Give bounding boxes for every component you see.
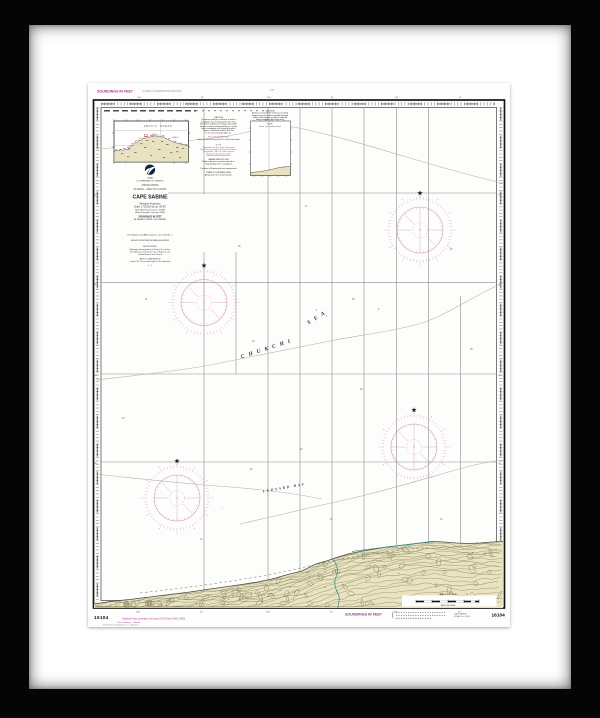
svg-text:United States Coast Guard: United States Coast Guard — [138, 253, 162, 256]
svg-text:163°: 163° — [136, 612, 140, 614]
svg-text:ALASKA – ARCTIC COAST: ALASKA – ARCTIC COAST — [134, 187, 167, 191]
svg-text:Positions of floating aids are: Positions of floating aids are approxima… — [201, 167, 237, 170]
svg-text:4: 4 — [316, 310, 318, 312]
svg-text:28: 28 — [470, 349, 473, 351]
svg-text:For Symbols and Abbreviations,: For Symbols and Abbreviations, see Chart… — [128, 233, 174, 236]
svg-text:22: 22 — [300, 449, 303, 451]
svg-text:30: 30 — [450, 249, 453, 251]
svg-text:AIDS TO NAVIGATION: AIDS TO NAVIGATION — [140, 257, 161, 260]
svg-text:Published at Washington, D.C.: Published at Washington, D.C. Edition 9 — [103, 623, 139, 626]
svg-text:163°: 163° — [137, 97, 141, 99]
svg-text:12: 12 — [200, 539, 203, 541]
svg-text:69°: 69° — [95, 195, 98, 197]
svg-text:27: 27 — [305, 206, 308, 208]
svg-text:obtained at the District Offic: obtained at the District Office. — [206, 152, 232, 155]
svg-text:SCALE 1:700 000: SCALE 1:700 000 — [439, 593, 457, 596]
svg-text:AT MEAN LOWER LOW WATER: AT MEAN LOWER LOW WATER — [134, 218, 166, 221]
svg-text:x: x — [222, 507, 224, 509]
svg-text:SOUNDINGS IN FEET: SOUNDINGS IN FEET — [97, 89, 134, 93]
svg-text:NAUTICAL MILES: NAUTICAL MILES — [441, 604, 457, 607]
svg-text:Point Lay continuation: Point Lay continuation — [259, 125, 281, 128]
svg-text:16104: 16104 — [94, 615, 109, 620]
svg-text:AUTHORITIES: AUTHORITIES — [143, 245, 157, 248]
svg-text:30': 30' — [200, 612, 203, 614]
svg-text:30': 30' — [459, 97, 462, 99]
svg-text:→: → — [97, 271, 99, 273]
svg-text:30': 30' — [330, 612, 333, 614]
svg-text:Additional chart coverage in t: Additional chart coverage in this area: … — [122, 618, 186, 621]
svg-text:4: 4 — [326, 316, 328, 318]
svg-text:ARCTIC OCEAN: ARCTIC OCEAN — [144, 125, 172, 128]
svg-text:⊥ ⊥: ⊥ ⊥ — [147, 263, 153, 267]
svg-text:CAPE SABINE: CAPE SABINE — [454, 612, 467, 615]
svg-text:Chart Catalog 4 — Alaska: Chart Catalog 4 — Alaska — [117, 621, 141, 624]
svg-text:161°: 161° — [395, 97, 399, 99]
svg-text:SOUNDINGS IN FEET: SOUNDINGS IN FEET — [345, 613, 383, 617]
svg-text:CAPE SABINE: CAPE SABINE — [133, 194, 169, 200]
svg-text:69°: 69° — [499, 195, 502, 197]
svg-text:26: 26 — [360, 389, 363, 391]
svg-text:69°: 69° — [499, 375, 502, 377]
svg-text:NOAA: NOAA — [147, 177, 153, 180]
svg-text:21: 21 — [145, 299, 148, 301]
svg-text:SOUNDINGS IN FEET: SOUNDINGS IN FEET — [138, 216, 162, 218]
svg-text:162°: 162° — [266, 612, 270, 614]
svg-text:North American Datum of 1983: North American Datum of 1983 — [135, 209, 166, 212]
svg-text:Scale 1:700,000 at Lat. 69°00': Scale 1:700,000 at Lat. 69°00' — [134, 205, 167, 208]
svg-text:Consult U.S. Coast Guard Light: Consult U.S. Coast Guard Light List for … — [130, 260, 171, 263]
svg-text:Hydrography and topography by: Hydrography and topography by the Nation… — [130, 248, 171, 251]
svg-text:25: 25 — [352, 299, 355, 301]
svg-text:Alaska Zone 8 is shown by tick: Alaska Zone 8 is shown by ticks — [205, 173, 232, 176]
svg-text:162°: 162° — [267, 97, 271, 99]
svg-text:NOAA Chart 16104: NOAA Chart 16104 — [454, 615, 470, 618]
svg-text:5: 5 — [378, 309, 380, 311]
svg-text:SCALE 1:: SCALE 1: — [172, 136, 180, 139]
svg-text:HEIGHTS IN FEET ABOVE MEAN HIG: HEIGHTS IN FEET ABOVE MEAN HIGH WATER — [131, 239, 169, 242]
svg-text:16104: 16104 — [492, 612, 506, 618]
svg-text:many floating aids to navigati: many floating aids to navigation. — [205, 162, 233, 165]
svg-text:U.S. Coast Guard Light List.: U.S. Coast Guard Light List. — [206, 131, 232, 134]
svg-text:20: 20 — [250, 469, 253, 471]
svg-text:30': 30' — [201, 97, 204, 99]
svg-text:10: 10 — [440, 519, 443, 521]
svg-text:69°: 69° — [95, 375, 98, 377]
svg-text:166°: 166° — [270, 90, 275, 92]
svg-text:Report all spills to the neare: Report all spills to the nearest U.S. Co… — [198, 138, 240, 141]
svg-text:15: 15 — [330, 519, 333, 521]
svg-text:→: → — [97, 409, 99, 411]
svg-text:30': 30' — [331, 97, 334, 99]
svg-text:(World Geodetic System 1984): (World Geodetic System 1984) — [135, 211, 165, 214]
svg-text:25: 25 — [238, 246, 241, 248]
svg-text:with additional surveys by the: with additional surveys by the Corps of … — [130, 250, 170, 253]
svg-text:19: 19 — [122, 418, 125, 420]
svg-text:24: 24 — [252, 341, 255, 343]
svg-text:(LORAN-C OVERPRINTED EDITION: (LORAN-C OVERPRINTED EDITION) — [143, 90, 182, 93]
